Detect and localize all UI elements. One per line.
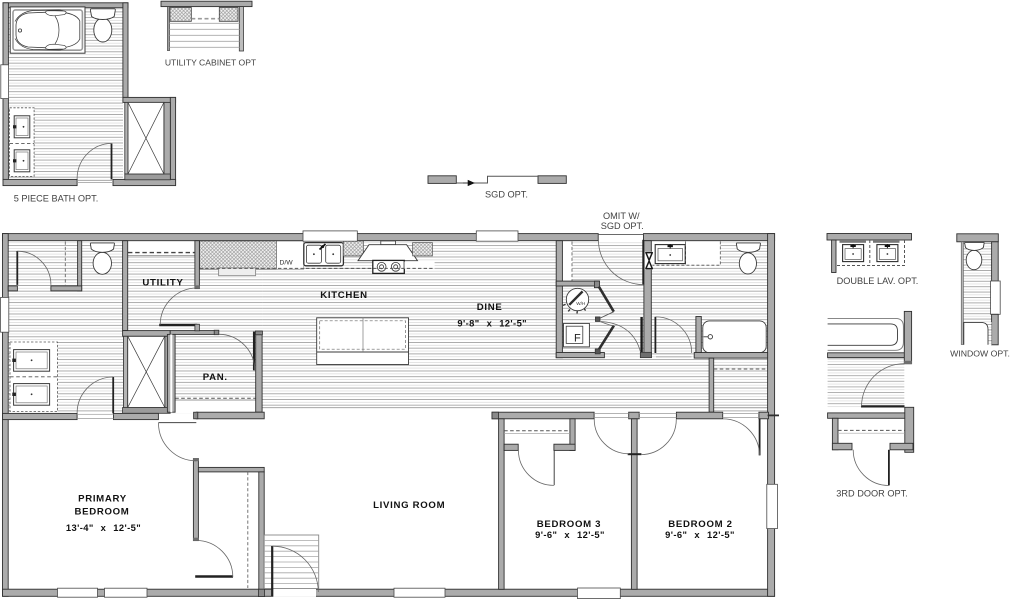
svg-text:W/H: W/H xyxy=(576,301,585,306)
svg-text:UTILITY CABINET OPT: UTILITY CABINET OPT xyxy=(165,58,257,68)
svg-text:DINE: DINE xyxy=(477,302,503,313)
svg-text:KITCHEN: KITCHEN xyxy=(320,290,368,301)
svg-text:SGD OPT.: SGD OPT. xyxy=(601,221,644,231)
svg-text:UTILITY: UTILITY xyxy=(142,277,183,288)
svg-text:D/W: D/W xyxy=(280,259,294,266)
svg-text:PAN.: PAN. xyxy=(203,372,228,383)
svg-text:9'-6" x 12'-5": 9'-6" x 12'-5" xyxy=(665,529,735,540)
svg-text:DOUBLE LAV. OPT.: DOUBLE LAV. OPT. xyxy=(837,276,919,286)
svg-text:5 PIECE BATH OPT.: 5 PIECE BATH OPT. xyxy=(14,194,99,204)
svg-text:SGD OPT.: SGD OPT. xyxy=(485,190,528,200)
svg-text:9'-6" x 12'-5": 9'-6" x 12'-5" xyxy=(535,529,605,540)
svg-text:9'-8" x 12'-5": 9'-8" x 12'-5" xyxy=(457,317,527,328)
svg-text:PRIMARY: PRIMARY xyxy=(78,494,127,505)
svg-text:F: F xyxy=(574,332,581,344)
svg-text:3RD DOOR OPT.: 3RD DOOR OPT. xyxy=(836,488,907,498)
svg-text:13'-4" x 12'-5": 13'-4" x 12'-5" xyxy=(66,522,141,533)
svg-text:BEDROOM: BEDROOM xyxy=(74,506,129,517)
svg-text:OMIT W/: OMIT W/ xyxy=(603,211,640,221)
svg-text:LIVING ROOM: LIVING ROOM xyxy=(373,500,445,511)
svg-text:WINDOW OPT.: WINDOW OPT. xyxy=(950,348,1010,358)
